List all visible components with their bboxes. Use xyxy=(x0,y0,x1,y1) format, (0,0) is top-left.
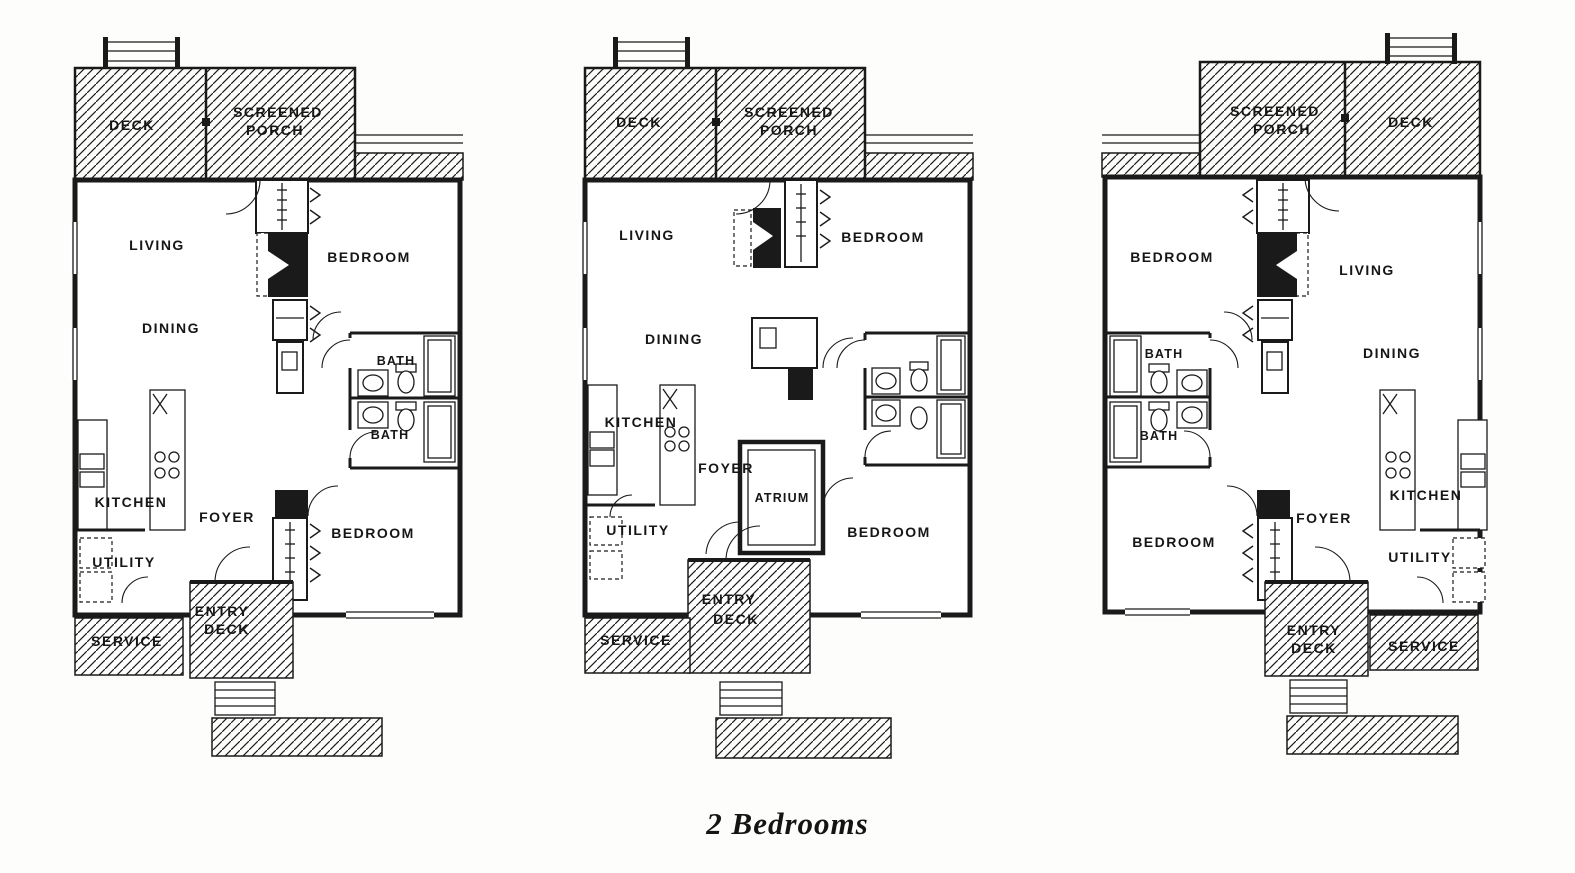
room-label-screened: SCREENED xyxy=(1230,103,1320,119)
room-label-entry-deck-2: DECK xyxy=(1291,640,1337,656)
room-label-service: SERVICE xyxy=(1388,638,1460,654)
room-label-living: LIVING xyxy=(619,227,675,243)
room-label-bedroom-lower: BEDROOM xyxy=(847,524,931,540)
figure-caption: 2 Bedrooms xyxy=(0,806,1575,842)
room-label-porch: PORCH xyxy=(246,122,304,138)
room-label-kitchen: KITCHEN xyxy=(605,414,678,430)
room-label-entry-deck-2: DECK xyxy=(204,621,250,637)
room-label-bedroom-upper: BEDROOM xyxy=(327,249,411,265)
room-label-utility: UTILITY xyxy=(1388,549,1451,565)
room-label-service: SERVICE xyxy=(600,632,672,648)
room-label-living: LIVING xyxy=(129,237,185,253)
room-label-dining: DINING xyxy=(645,331,703,347)
room-label-kitchen: KITCHEN xyxy=(1390,487,1463,503)
floor-plan-middle: DECK SCREENED PORCH LIVING DINING BEDROO… xyxy=(570,30,1000,770)
room-label-bedroom-upper: BEDROOM xyxy=(841,229,925,245)
room-label-living: LIVING xyxy=(1339,262,1395,278)
room-label-dining: DINING xyxy=(1363,345,1421,361)
floor-plan-left: DECK SCREENED PORCH LIVING DINING BEDROO… xyxy=(60,30,490,770)
room-label-dining: DINING xyxy=(142,320,200,336)
room-label-screened: SCREENED xyxy=(233,104,323,120)
room-label-screened: SCREENED xyxy=(744,104,834,120)
floor-plan-sheet: DECK SCREENED PORCH LIVING DINING BEDROO… xyxy=(0,0,1575,873)
floor-plan-right: SCREENED PORCH DECK BEDROOM LIVING BATH … xyxy=(1080,30,1510,770)
room-label-foyer: FOYER xyxy=(698,460,754,476)
room-label-entry-deck-2: DECK xyxy=(713,611,759,627)
room-label-deck: DECK xyxy=(109,117,155,133)
room-label-deck: DECK xyxy=(1388,114,1434,130)
room-label-foyer: FOYER xyxy=(199,509,255,525)
room-label-bath-lower: BATH xyxy=(1140,429,1179,443)
room-label-entry-deck-1: ENTRY xyxy=(195,603,249,619)
room-label-bedroom-lower: BEDROOM xyxy=(1132,534,1216,550)
room-label-porch: PORCH xyxy=(1253,121,1311,137)
room-label-entry-deck-1: ENTRY xyxy=(702,591,756,607)
room-label-utility: UTILITY xyxy=(92,554,155,570)
room-label-kitchen: KITCHEN xyxy=(95,494,168,510)
room-label-bath-upper: BATH xyxy=(377,354,416,368)
room-label-bath-lower: BATH xyxy=(371,428,410,442)
room-label-deck: DECK xyxy=(616,114,662,130)
room-label-bedroom-lower: BEDROOM xyxy=(331,525,415,541)
room-label-entry-deck-1: ENTRY xyxy=(1287,622,1341,638)
room-label-utility: UTILITY xyxy=(606,522,669,538)
room-label-bath-upper: BATH xyxy=(1145,347,1184,361)
room-label-porch: PORCH xyxy=(760,122,818,138)
room-label-service: SERVICE xyxy=(91,633,163,649)
room-label-bedroom-upper: BEDROOM xyxy=(1130,249,1214,265)
room-label-atrium: ATRIUM xyxy=(755,491,810,505)
room-label-foyer: FOYER xyxy=(1296,510,1352,526)
